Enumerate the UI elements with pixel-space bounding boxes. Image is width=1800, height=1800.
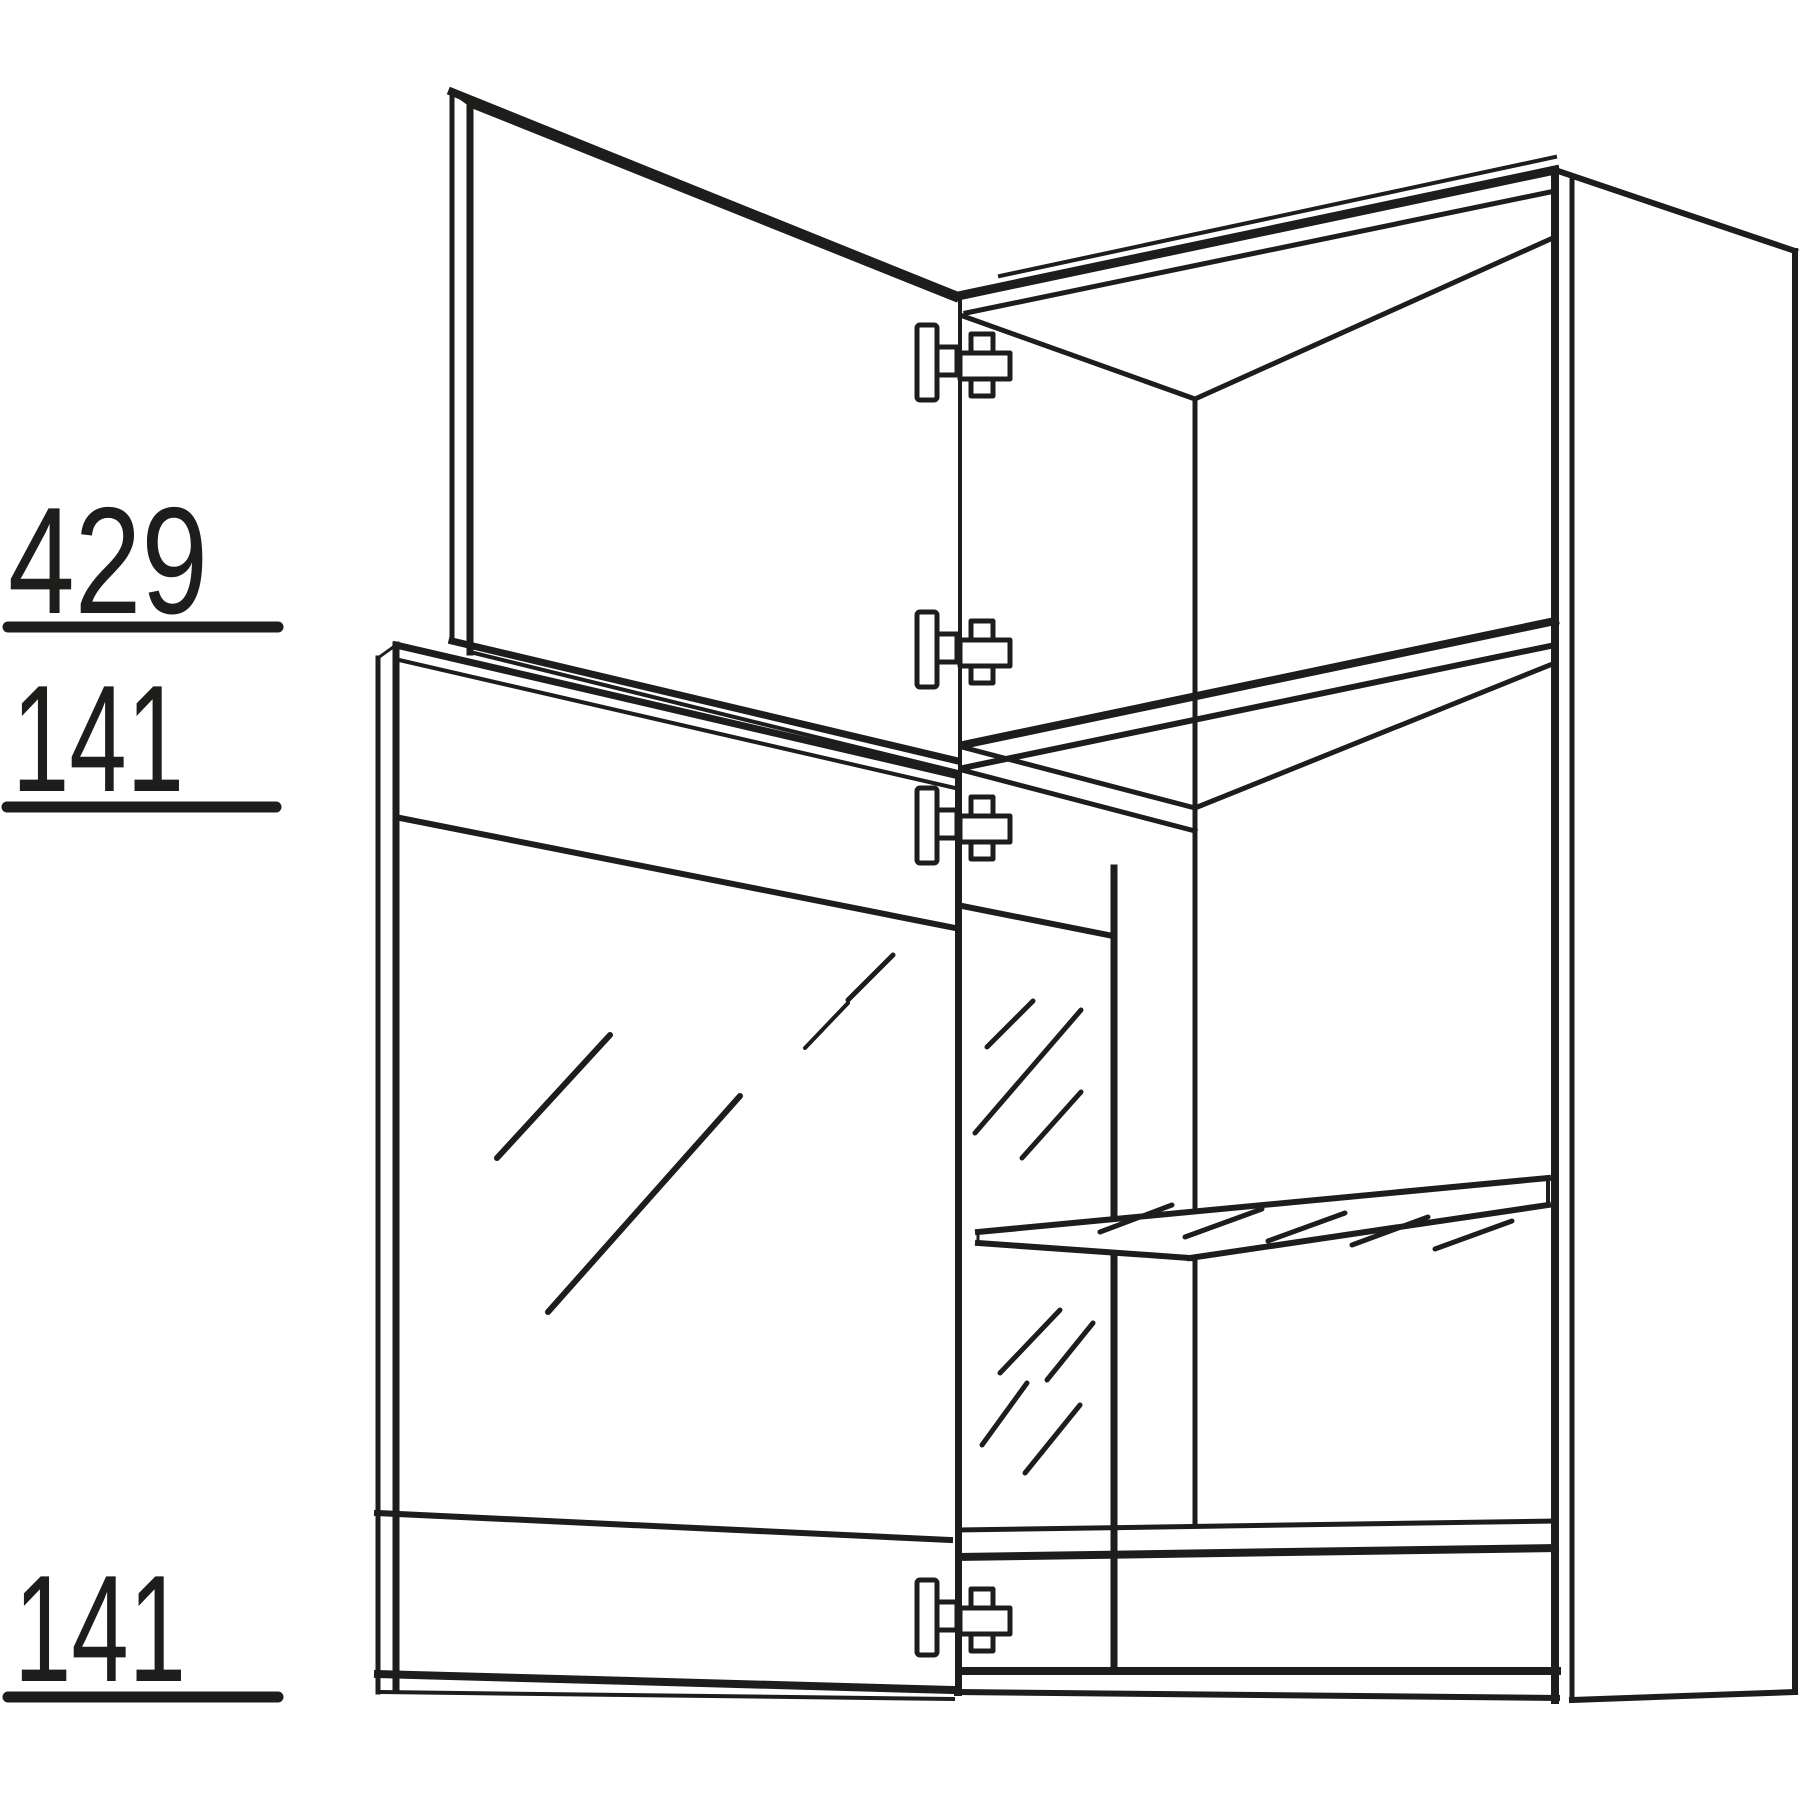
hinge-knuckle bbox=[937, 634, 957, 662]
dimension-labels: 429 141 141 bbox=[7, 476, 278, 1714]
glass-hatch-line bbox=[1047, 1323, 1093, 1380]
cabinet-technical-drawing: 429 141 141 bbox=[0, 0, 1800, 1800]
drawing-canvas: 429 141 141 bbox=[0, 0, 1800, 1800]
hinge-mount-arm bbox=[960, 816, 1010, 842]
hinge-4 bbox=[917, 1580, 1010, 1655]
hinge-1 bbox=[917, 325, 1010, 400]
carcass-top-front-edge-outer bbox=[1000, 157, 1555, 276]
dimension-top-rail: 141 bbox=[7, 654, 276, 824]
glass-hatch-line bbox=[987, 1001, 1033, 1047]
hinge-mount-arm bbox=[960, 640, 1010, 666]
divider-front-edge-lower bbox=[958, 645, 1555, 769]
hinge-mount-arm bbox=[960, 353, 1010, 379]
hinge-3 bbox=[917, 788, 1010, 863]
dimension-upper-door: 429 bbox=[8, 476, 278, 646]
dimension-value-141-bottom: 141 bbox=[14, 1544, 186, 1714]
right-side-panel bbox=[1555, 170, 1795, 1700]
hinge-door-plate bbox=[917, 1580, 937, 1655]
upper-door bbox=[452, 92, 958, 772]
hinge-knuckle bbox=[937, 810, 957, 838]
glass-hatch-line bbox=[1435, 1221, 1512, 1249]
divider-front-edge bbox=[958, 621, 1555, 746]
glass-hatch-line bbox=[1025, 1405, 1080, 1473]
glass-door bbox=[377, 645, 955, 1699]
glass-hatch-line bbox=[982, 1383, 1027, 1445]
hinge-knuckle bbox=[937, 1602, 957, 1630]
ceiling-back-edge bbox=[1195, 237, 1555, 399]
hinge-door-plate bbox=[917, 788, 937, 863]
bottom-panel-top-edge bbox=[958, 1548, 1555, 1557]
dimension-value-429: 429 bbox=[8, 476, 208, 646]
hinge-door-plate bbox=[917, 612, 937, 687]
hinge-knuckle bbox=[937, 347, 957, 375]
hinge-mount-arm bbox=[960, 1608, 1010, 1634]
glass-shelf bbox=[978, 1178, 1548, 1258]
glass-side-panel-top-edge bbox=[957, 905, 1113, 936]
hinge-door-plate bbox=[917, 325, 937, 400]
ceiling-front-inner-edge bbox=[966, 191, 1555, 313]
dimension-bottom-rail: 141 bbox=[8, 1544, 278, 1714]
glass-hatch-line bbox=[1022, 1092, 1081, 1158]
bottom-interior-edge bbox=[958, 1521, 1555, 1530]
carcass-bottom-edge bbox=[958, 1692, 1557, 1698]
glass-door-bottom-edge-inner bbox=[378, 1692, 953, 1699]
glass-side-panel bbox=[957, 868, 1114, 1668]
dimension-value-141-top: 141 bbox=[12, 654, 184, 824]
glass-hatch-line bbox=[1000, 1310, 1060, 1373]
glass-hatch-line bbox=[975, 1010, 1081, 1133]
hinge-2 bbox=[917, 612, 1010, 687]
